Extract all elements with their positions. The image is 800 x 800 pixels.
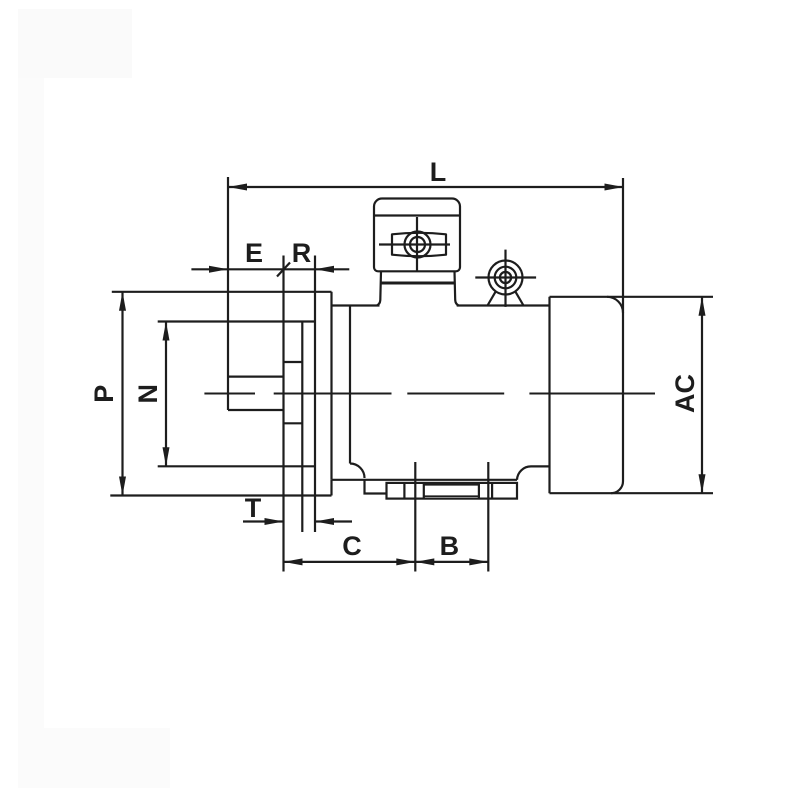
svg-text:C: C: [342, 531, 362, 561]
svg-text:P: P: [89, 385, 119, 403]
svg-text:AC: AC: [670, 374, 700, 413]
svg-text:L: L: [430, 157, 447, 187]
svg-text:E: E: [245, 238, 263, 268]
svg-text:T: T: [245, 493, 262, 523]
svg-text:B: B: [440, 531, 460, 561]
svg-text:R: R: [292, 238, 312, 268]
svg-text:N: N: [133, 384, 163, 404]
